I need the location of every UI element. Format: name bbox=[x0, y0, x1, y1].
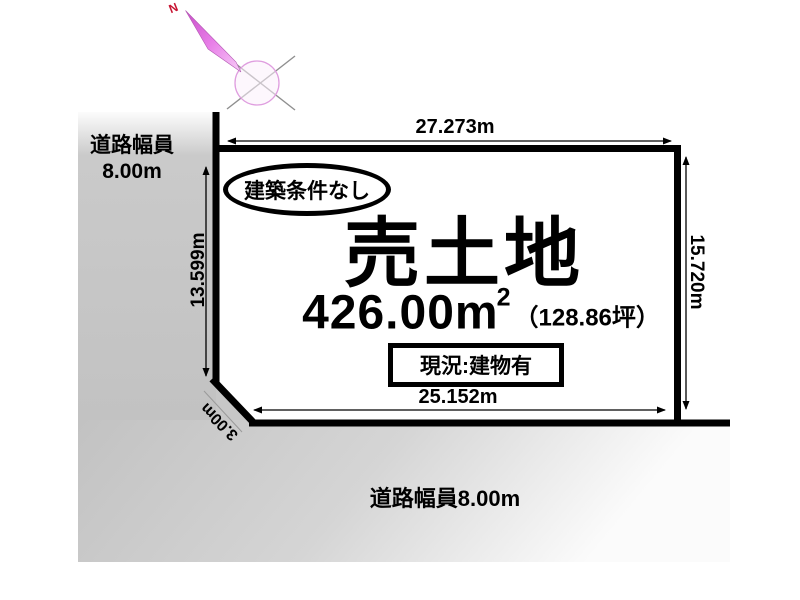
land-plot-diagram: N 道路幅員 8.00m 27.273m 13.599m 15.720m 25.… bbox=[0, 0, 800, 600]
compass-ring bbox=[235, 61, 279, 105]
area-superscript: 2 bbox=[497, 284, 511, 313]
dimension-label-left: 13.599m bbox=[188, 232, 210, 307]
area-line: 426.00m 2 （128.86坪） bbox=[302, 286, 660, 341]
dimension-label-bottom: 25.152m bbox=[406, 386, 510, 409]
current-status-label: 現況:建物有 bbox=[420, 350, 532, 380]
compass-needle bbox=[186, 11, 242, 73]
area-tsubo: （128.86坪） bbox=[515, 298, 660, 333]
road-left-label-line2: 8.00m bbox=[80, 159, 184, 185]
dimension-label-top: 27.273m bbox=[403, 116, 507, 139]
road-bottom-label: 道路幅員8.00m bbox=[345, 481, 545, 513]
compass-icon bbox=[186, 11, 296, 111]
road-left-label-line1: 道路幅員 bbox=[90, 134, 174, 157]
current-status-box: 現況:建物有 bbox=[388, 343, 564, 387]
area-value: 426.00m bbox=[302, 286, 499, 341]
road-left-label: 道路幅員 8.00m bbox=[80, 133, 184, 185]
dimension-label-right: 15.720m bbox=[685, 234, 707, 309]
